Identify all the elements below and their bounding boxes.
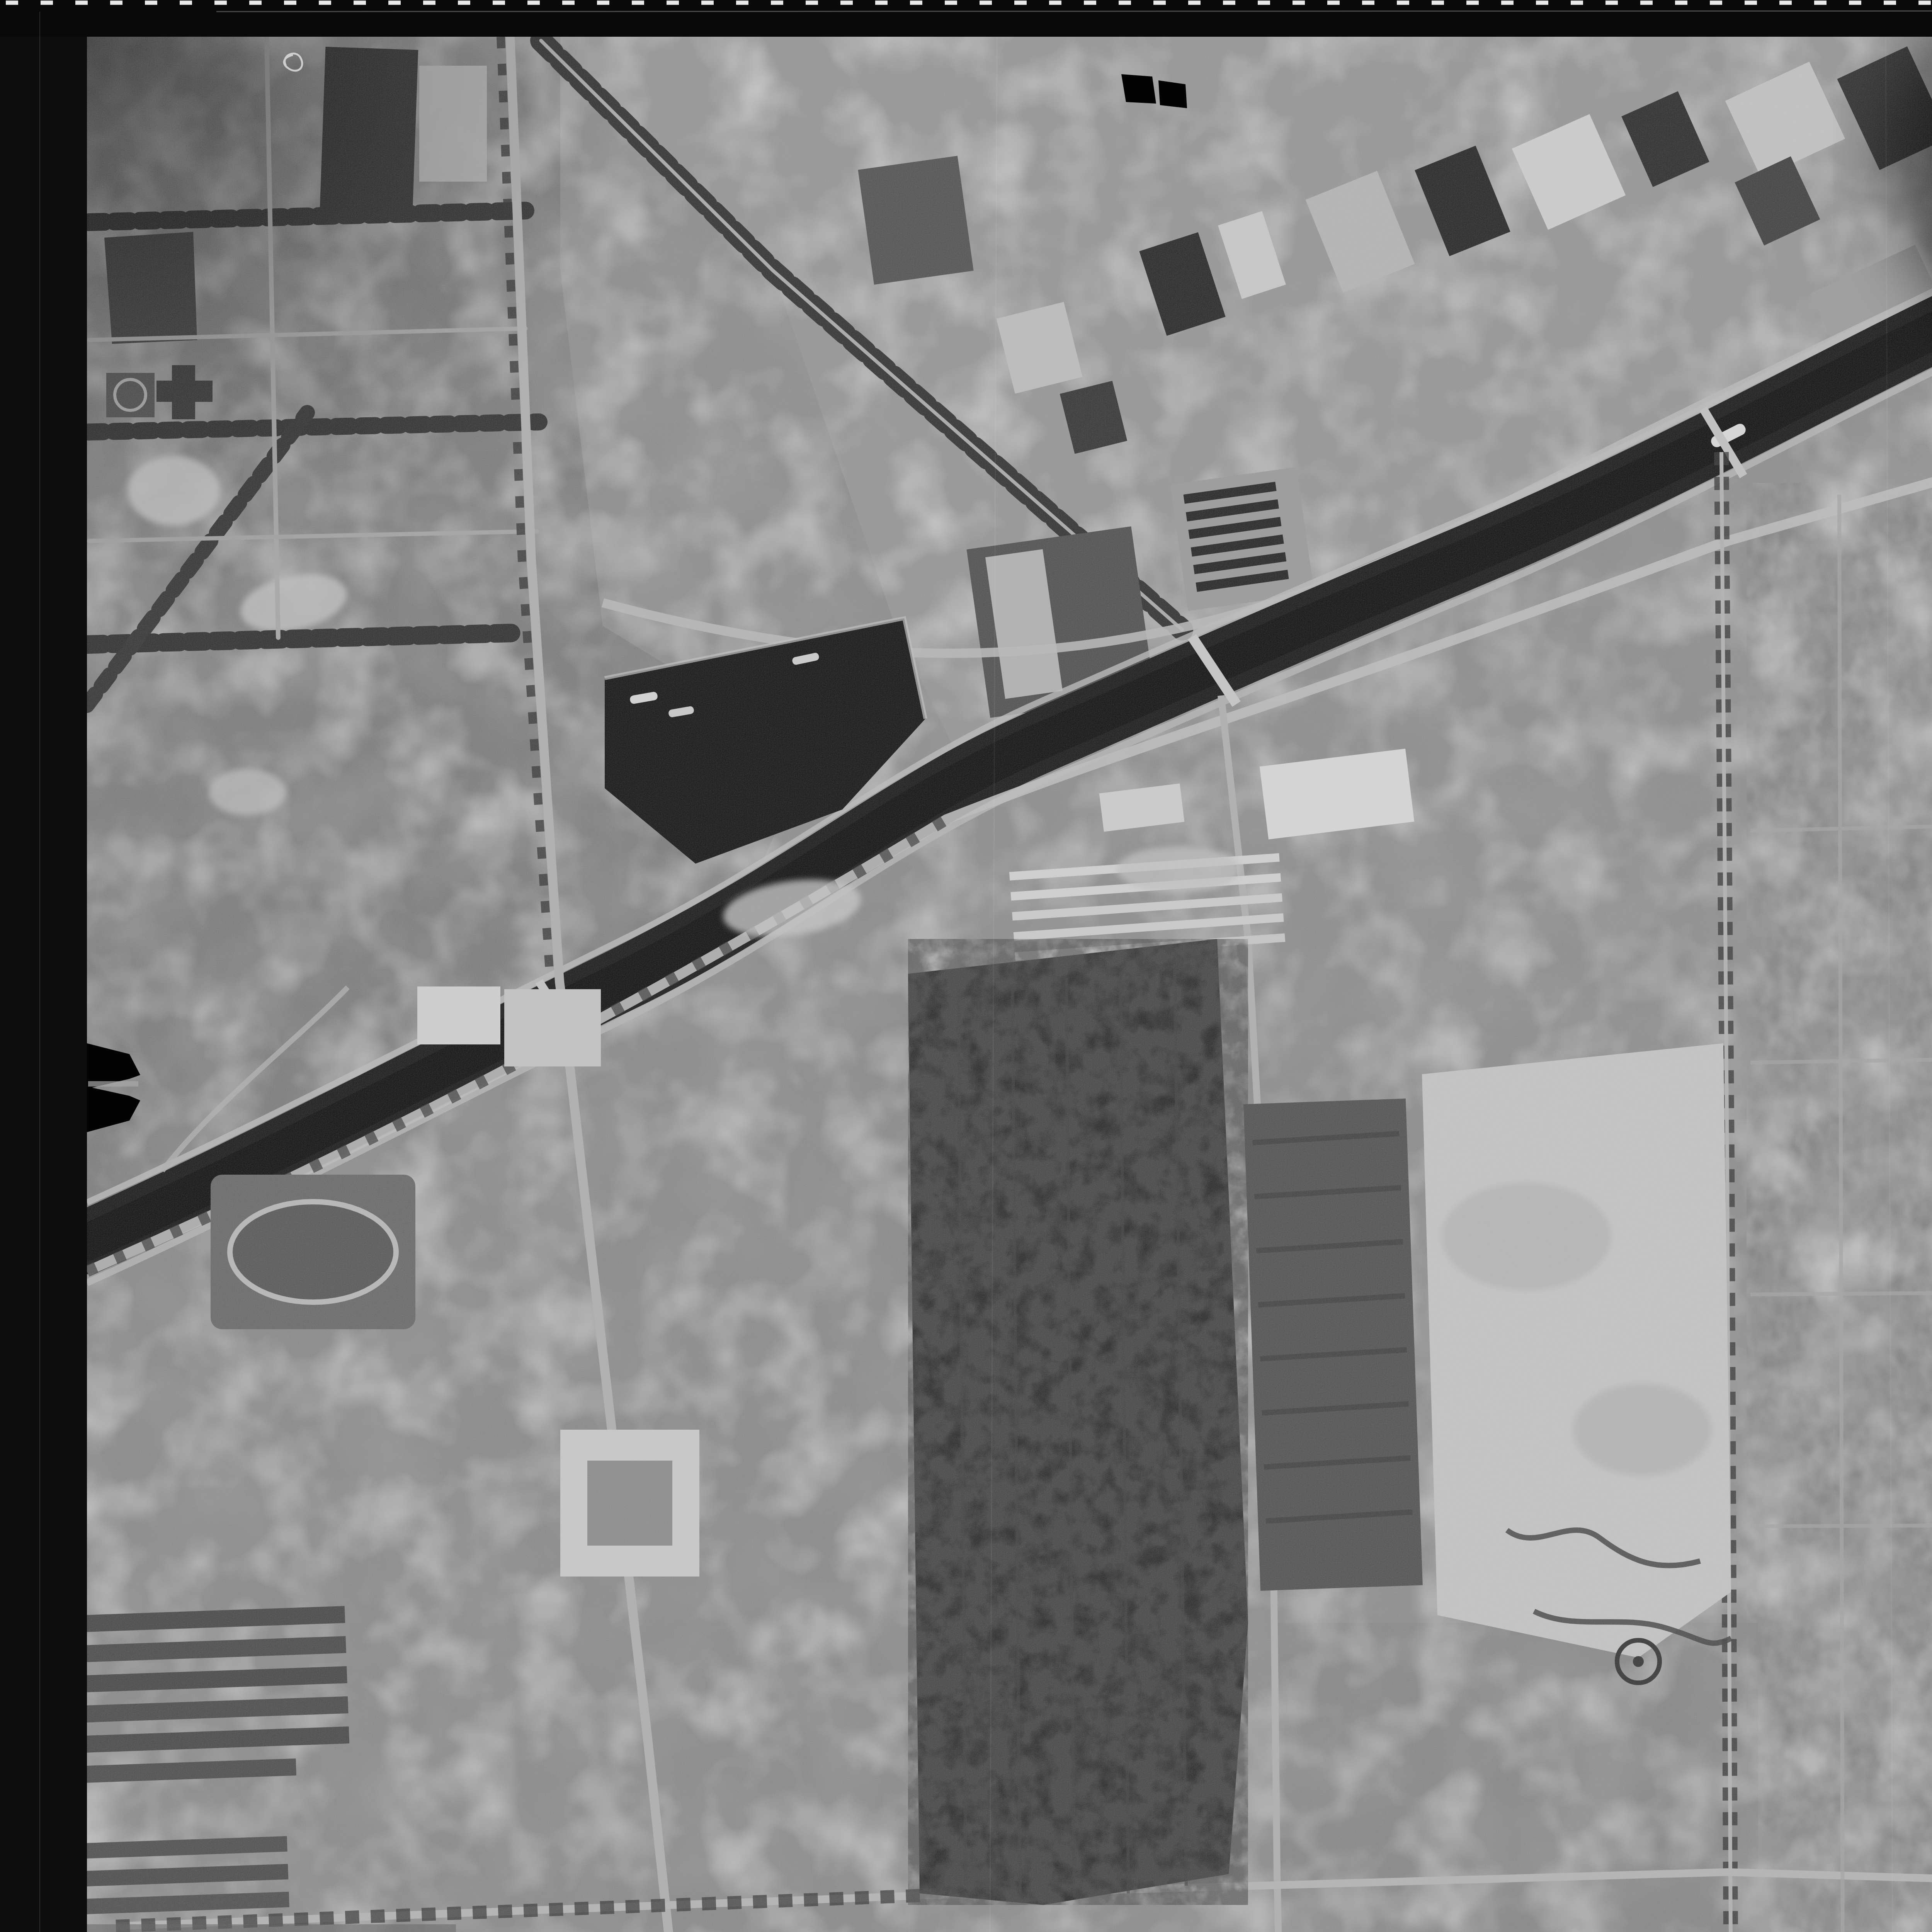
top-fiducial-tab <box>1158 80 1187 108</box>
top-edge-line <box>216 11 1932 12</box>
film-grain <box>87 37 1932 1932</box>
left-fiducial-slit <box>88 1081 138 1087</box>
film-rebate-left <box>0 0 87 1932</box>
scanned-aerial-film-frame: Black-and-white vertical aerial photogra… <box>0 0 1932 1932</box>
top-fiducial-tab <box>1121 74 1156 104</box>
film-rebate-top <box>0 0 1932 37</box>
aerial-photograph: Black-and-white vertical aerial photogra… <box>50 0 1932 1932</box>
